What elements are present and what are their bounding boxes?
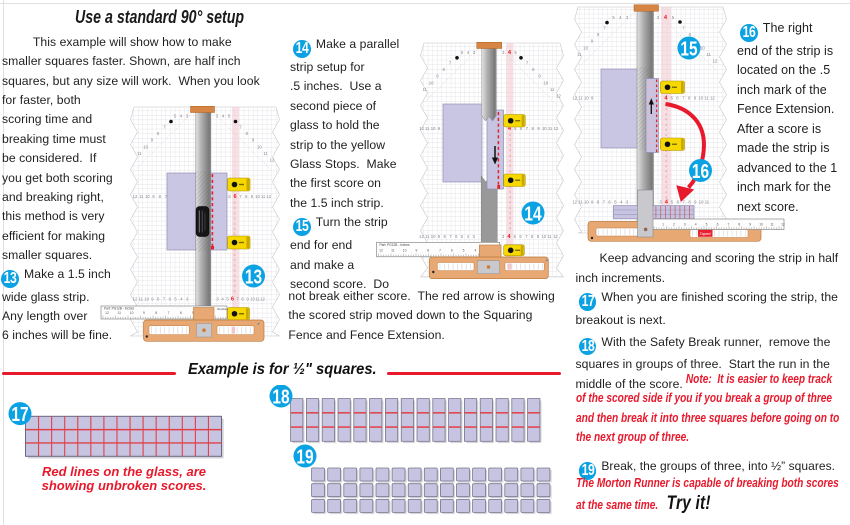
svg-text:18: 18 (272, 385, 289, 408)
svg-text:10: 10 (583, 45, 588, 50)
svg-text:10: 10 (255, 194, 260, 199)
svg-text:8: 8 (155, 311, 157, 315)
svg-text:4: 4 (509, 133, 511, 137)
svg-text:7: 7 (168, 311, 170, 315)
svg-text:12: 12 (419, 234, 424, 239)
svg-text:4: 4 (509, 169, 511, 173)
svg-text:11: 11 (118, 311, 122, 315)
svg-text:15: 15 (680, 37, 697, 60)
svg-text:6: 6 (233, 217, 235, 221)
svg-text:7: 7 (439, 248, 441, 252)
svg-text:10: 10 (145, 194, 150, 199)
svg-text:6: 6 (451, 248, 453, 252)
svg-text:12: 12 (710, 96, 715, 101)
svg-text:6: 6 (233, 206, 235, 210)
svg-text:10: 10 (429, 80, 434, 85)
svg-text:10: 10 (431, 234, 436, 239)
svg-text:8: 8 (738, 223, 740, 227)
svg-text:11: 11 (264, 151, 269, 156)
svg-text:11: 11 (423, 87, 428, 92)
svg-text:12: 12 (572, 96, 577, 101)
svg-text:11: 11 (705, 199, 710, 204)
svg-text:4: 4 (509, 154, 511, 158)
svg-text:Taped: Taped (700, 231, 712, 236)
svg-text:4: 4 (665, 118, 667, 122)
svg-text:12: 12 (713, 59, 718, 64)
svg-text:11: 11 (550, 87, 555, 92)
svg-text:6: 6 (717, 223, 719, 227)
svg-text:10: 10 (431, 126, 436, 131)
svg-text:9: 9 (749, 223, 751, 227)
svg-text:6: 6 (233, 211, 235, 215)
svg-text:6: 6 (180, 311, 182, 315)
svg-text:11: 11 (770, 223, 774, 227)
svg-text:4: 4 (509, 195, 511, 199)
svg-text:1: 1 (662, 223, 664, 227)
svg-text:6: 6 (233, 269, 235, 273)
svg-text:3: 3 (684, 223, 686, 227)
svg-text:4: 4 (665, 159, 667, 163)
svg-text:12: 12 (105, 311, 109, 315)
svg-text:10: 10 (698, 96, 703, 101)
svg-text:16: 16 (692, 160, 709, 183)
svg-text:4: 4 (665, 112, 667, 116)
svg-text:11: 11 (391, 248, 395, 252)
svg-text:6: 6 (233, 222, 235, 226)
svg-text:6: 6 (233, 289, 235, 293)
svg-text:4: 4 (665, 107, 667, 111)
svg-text:12: 12 (572, 199, 577, 204)
svg-text:11: 11 (139, 296, 144, 301)
svg-text:6: 6 (233, 279, 235, 283)
svg-text:4: 4 (665, 133, 667, 137)
svg-text:4: 4 (509, 201, 511, 205)
svg-text:10: 10 (144, 296, 149, 301)
svg-text:11: 11 (425, 126, 430, 131)
svg-text:10: 10 (542, 126, 547, 131)
svg-text:2: 2 (673, 223, 675, 227)
svg-text:4: 4 (509, 143, 511, 147)
svg-text:7: 7 (727, 223, 729, 227)
svg-text:6: 6 (233, 284, 235, 288)
svg-text:11: 11 (704, 96, 709, 101)
svg-text:6: 6 (233, 201, 235, 205)
svg-text:10: 10 (584, 199, 589, 204)
svg-text:4: 4 (665, 180, 667, 184)
svg-text:4: 4 (509, 164, 511, 168)
svg-text:12: 12 (266, 194, 271, 199)
svg-text:4: 4 (665, 164, 667, 168)
svg-text:10: 10 (544, 80, 549, 85)
svg-text:4: 4 (665, 185, 667, 189)
svg-text:12: 12 (379, 248, 383, 252)
svg-text:4: 4 (665, 190, 667, 194)
svg-text:4: 4 (509, 216, 511, 220)
svg-text:4: 4 (509, 211, 511, 215)
svg-text:10: 10 (584, 96, 589, 101)
svg-text:11: 11 (425, 234, 430, 239)
svg-text:4: 4 (474, 248, 476, 252)
svg-text:4: 4 (509, 206, 511, 210)
svg-text:4: 4 (695, 223, 697, 227)
svg-text:10: 10 (403, 248, 407, 252)
svg-text:11: 11 (578, 199, 583, 204)
svg-text:17: 17 (11, 403, 28, 426)
svg-text:Part: PG12B - Inches: Part: PG12B - Inches (104, 307, 135, 311)
svg-text:9: 9 (415, 248, 417, 252)
svg-text:12: 12 (419, 126, 424, 131)
svg-text:10: 10 (143, 144, 148, 149)
svg-text:19: 19 (296, 445, 313, 468)
svg-text:4: 4 (509, 149, 511, 153)
svg-text:11: 11 (261, 194, 266, 199)
svg-text:12: 12 (781, 223, 785, 227)
svg-text:10: 10 (257, 144, 262, 149)
svg-text:4: 4 (665, 170, 667, 174)
svg-text:12: 12 (554, 126, 559, 131)
svg-text:4: 4 (509, 138, 511, 142)
svg-text:10: 10 (130, 311, 134, 315)
svg-text:10: 10 (759, 223, 763, 227)
svg-text:4: 4 (509, 227, 511, 231)
svg-text:5: 5 (463, 248, 465, 252)
svg-text:11: 11 (578, 96, 583, 101)
svg-text:4: 4 (509, 221, 511, 225)
svg-text:6: 6 (233, 274, 235, 278)
svg-text:10: 10 (541, 234, 546, 239)
svg-text:12: 12 (133, 194, 138, 199)
svg-text:5: 5 (706, 223, 708, 227)
svg-text:10: 10 (700, 45, 705, 50)
svg-text:Part: PG12B - Inches: Part: PG12B - Inches (380, 243, 411, 247)
svg-text:12: 12 (553, 234, 558, 239)
svg-text:10: 10 (699, 199, 704, 204)
svg-text:12: 12 (260, 296, 265, 301)
svg-text:9: 9 (143, 311, 145, 315)
svg-text:12: 12 (556, 94, 561, 99)
svg-text:6: 6 (234, 194, 237, 200)
svg-text:12: 12 (133, 296, 138, 301)
svg-text:11: 11 (137, 151, 142, 156)
svg-text:4: 4 (665, 123, 667, 127)
svg-text:6: 6 (233, 227, 235, 231)
svg-text:6: 6 (233, 263, 235, 267)
svg-text:6: 6 (231, 296, 234, 302)
svg-text:4: 4 (509, 190, 511, 194)
svg-text:11: 11 (577, 52, 582, 57)
svg-text:4: 4 (665, 128, 667, 132)
svg-text:4: 4 (665, 175, 667, 179)
svg-text:4: 4 (509, 159, 511, 163)
svg-text:6: 6 (233, 232, 235, 236)
svg-text:11: 11 (707, 52, 712, 57)
svg-text:12: 12 (270, 158, 275, 163)
svg-text:14: 14 (524, 202, 542, 225)
svg-text:11: 11 (548, 126, 553, 131)
svg-text:11: 11 (547, 234, 552, 239)
svg-text:4: 4 (665, 154, 667, 158)
svg-text:8: 8 (427, 248, 429, 252)
svg-text:13: 13 (245, 265, 262, 288)
svg-text:11: 11 (139, 194, 144, 199)
svg-text:6: 6 (233, 258, 235, 262)
svg-text:6: 6 (233, 253, 235, 257)
